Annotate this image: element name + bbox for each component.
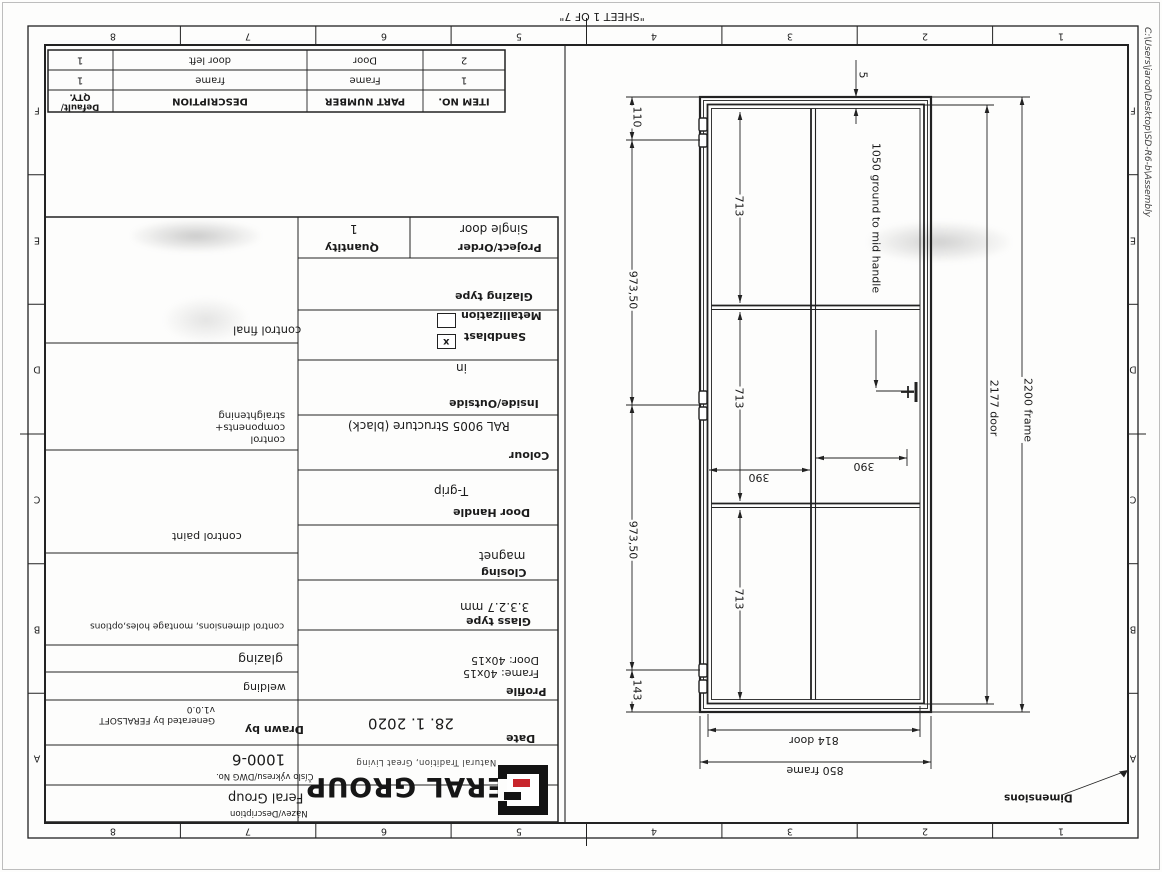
dim-hinge-bot: 143	[631, 679, 644, 702]
dim-glass-width-right: 390	[854, 460, 875, 472]
dimensions-note: Dimensions	[1004, 791, 1073, 803]
dim-door-height: 2177 door	[988, 379, 1001, 437]
zone-number-top: 8	[110, 30, 116, 41]
sheet-note: "SHEET 1 OF 7"	[559, 10, 644, 22]
dim-door-width: 814 door	[789, 734, 838, 746]
dim-hinge-top: 110	[631, 106, 644, 129]
zone-letter-left: C	[33, 493, 40, 504]
zone-letter-right: D	[1129, 364, 1136, 375]
bom-table-grid	[48, 50, 505, 112]
dim-handle-note: 1050 ground to mid handle	[870, 143, 883, 293]
control-welding: welding	[243, 680, 286, 693]
zone-number-top: 4	[651, 30, 657, 41]
metallization-checkbox	[437, 313, 456, 328]
closing-label: Closing	[481, 565, 526, 578]
zone-letter-left: F	[34, 104, 39, 115]
profile-label: Profile	[506, 684, 546, 697]
dim-frame-height: 2200 frame	[1022, 377, 1035, 443]
zone-number-bottom: 3	[787, 825, 793, 836]
bom-part: Door	[353, 54, 377, 65]
control-final: control final	[233, 323, 301, 337]
zone-number-top: 3	[787, 30, 793, 41]
bom-qty: 1	[77, 74, 83, 85]
logo-stub	[504, 792, 521, 800]
bom-part: Frame	[349, 74, 380, 85]
bom-item: 2	[461, 54, 467, 65]
zone-number-bottom: 8	[110, 825, 116, 836]
drawing-sheet: "SHEET 1 OF 7" C:\Users\jarod\Desktop\SD…	[0, 0, 1162, 872]
dim-gap: 5	[857, 72, 870, 79]
colour-value: RAL 9005 Structure (black)	[348, 419, 510, 433]
zone-number-bottom: 2	[922, 825, 928, 836]
zone-number-top: 7	[245, 30, 251, 41]
bom-header-desc: DESCRIPTION	[172, 95, 248, 106]
bom-header-qty: Default/ QTY.	[61, 91, 99, 110]
closing-value: magnet	[479, 549, 525, 563]
date-value: 28. 1. 2020	[368, 714, 454, 732]
order-qty-value: 1	[350, 222, 358, 236]
handle-symbol	[901, 382, 916, 402]
order-project-label: Project/Order	[458, 240, 542, 253]
colour-label: Colour	[509, 448, 549, 461]
zone-letter-right: A	[1130, 753, 1137, 764]
metallization-label: Metallization	[461, 308, 542, 321]
bom-desc: frame	[195, 74, 225, 85]
description-label: Název/Description	[230, 808, 308, 818]
inside-outside-label: Inside/Outside	[449, 396, 539, 409]
order-qty-label: Quantity	[325, 240, 379, 253]
glass-type-label: Glass type	[466, 614, 531, 627]
drawn-by-label: Drawn by	[245, 722, 304, 735]
dim-panel-1: 713	[733, 195, 746, 218]
drawn-by-value: Generated by FERALSOFT v1.0.0	[85, 704, 215, 725]
zone-letter-right: F	[1130, 104, 1135, 115]
brand-wordmark: FERAL GROUP	[306, 770, 524, 802]
control-glazing: glazing	[238, 651, 283, 666]
zone-number-top: 6	[380, 30, 386, 41]
description-value: Feral Group	[228, 789, 303, 804]
control-dimensions: control dimensions, montage holes,option…	[90, 620, 284, 631]
dim-panel-2: 713	[733, 387, 746, 410]
bom-desc: door left	[189, 54, 231, 65]
zone-number-top: 2	[922, 30, 928, 41]
bom-item: 1	[461, 74, 467, 85]
dim-glass-width-left: 390	[749, 471, 770, 483]
bom-header-part: PART NUMBER	[325, 95, 405, 106]
zone-number-top: 5	[516, 30, 522, 41]
inside-outside-value: in	[456, 361, 467, 375]
date-label: Date	[506, 731, 535, 744]
control-paint: control paint	[172, 529, 242, 542]
dim-hinge-mid2: 973,50	[627, 520, 640, 561]
zone-letter-left: D	[33, 364, 40, 375]
door-handle-value: T-grip	[434, 484, 468, 498]
zone-letter-left: A	[33, 753, 40, 764]
brand-tagline: Natural Tradition, Great Living	[356, 757, 496, 767]
dim-frame-width: 850 frame	[786, 764, 843, 776]
zone-letter-right: B	[1130, 623, 1137, 634]
dim-panel-3: 713	[733, 588, 746, 611]
zone-letter-right: C	[1130, 493, 1137, 504]
door-handle-label: Door Handle	[453, 505, 530, 518]
sandblast-mark: x	[443, 336, 449, 347]
zone-letter-right: E	[1130, 234, 1136, 245]
glass-type-value: 3.3.2.7 mm	[460, 600, 529, 614]
zone-number-bottom: 1	[1057, 825, 1063, 836]
zone-letter-left: E	[33, 234, 39, 245]
feral-group-logo-icon	[498, 765, 548, 815]
zone-number-top: 1	[1057, 30, 1063, 41]
dwg-no-value: 1000-6	[232, 750, 285, 768]
zone-number-bottom: 7	[245, 825, 251, 836]
dwg-no-label: Číslo výkresu/DWG No.	[216, 771, 314, 781]
zone-number-bottom: 4	[651, 825, 657, 836]
sandblast-label: Sandblast	[464, 329, 526, 342]
sandblast-checkbox: x	[437, 334, 456, 349]
glazing-type-label: Glazing type	[455, 289, 533, 302]
order-project-value: Single door	[460, 222, 528, 236]
profile-value: Frame: 40x15 Door: 40x15	[463, 653, 539, 679]
zone-letter-left: B	[33, 623, 40, 634]
logo-red-bar	[513, 779, 530, 787]
bom-qty: 1	[77, 54, 83, 65]
dim-hinge-mid1: 973,50	[627, 270, 640, 311]
control-components: control components+ straightening	[215, 409, 285, 444]
zone-number-bottom: 6	[380, 825, 386, 836]
bom-header-item: ITEM NO.	[438, 95, 489, 106]
file-path: C:\Users\jarod\Desktop\SD-R6-b\Assembly	[1142, 27, 1152, 217]
zone-number-bottom: 5	[516, 825, 522, 836]
